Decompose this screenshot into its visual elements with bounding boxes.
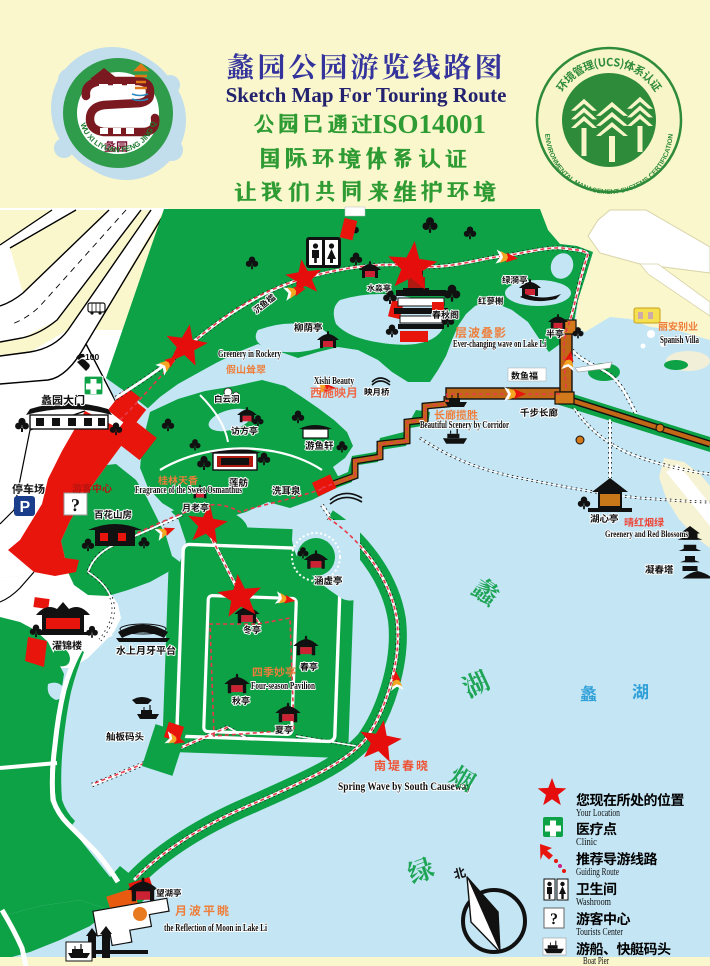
- svg-text:100: 100: [85, 352, 99, 362]
- svg-text:ISO14001: ISO14001: [372, 109, 486, 139]
- svg-text:Spanish Villa: Spanish Villa: [660, 335, 699, 346]
- svg-text:Guiding Route: Guiding Route: [576, 867, 619, 878]
- svg-text:Beautiful Scenery by Corridor: Beautiful Scenery by Corridor: [420, 420, 509, 431]
- svg-text:Xishi Beauty: Xishi Beauty: [314, 376, 354, 387]
- svg-text:Four-season Pavilion: Four-season Pavilion: [251, 681, 315, 692]
- svg-text:the Reflection of Moon in Lake: the Reflection of Moon in Lake Li: [164, 923, 267, 934]
- svg-text:Tourists Center: Tourists Center: [576, 927, 624, 938]
- svg-text:Washroom: Washroom: [576, 897, 611, 908]
- svg-text:Fragrance of the Sweet Osmanth: Fragrance of the Sweet Osmanthus: [135, 485, 242, 496]
- svg-text:Sketch Map For Touring Route: Sketch Map For Touring Route: [226, 83, 507, 107]
- svg-text:Clinic: Clinic: [576, 837, 597, 848]
- svg-text:Your Location: Your Location: [576, 808, 620, 819]
- svg-text:Ever-changing wave on Lake Li: Ever-changing wave on Lake Li: [453, 339, 546, 350]
- svg-text:Boat Pier: Boat Pier: [583, 956, 609, 966]
- svg-text:Greenery and Red Blossoms: Greenery and Red Blossoms: [605, 530, 688, 540]
- svg-text:Greenery in Rockery: Greenery in Rockery: [218, 349, 282, 360]
